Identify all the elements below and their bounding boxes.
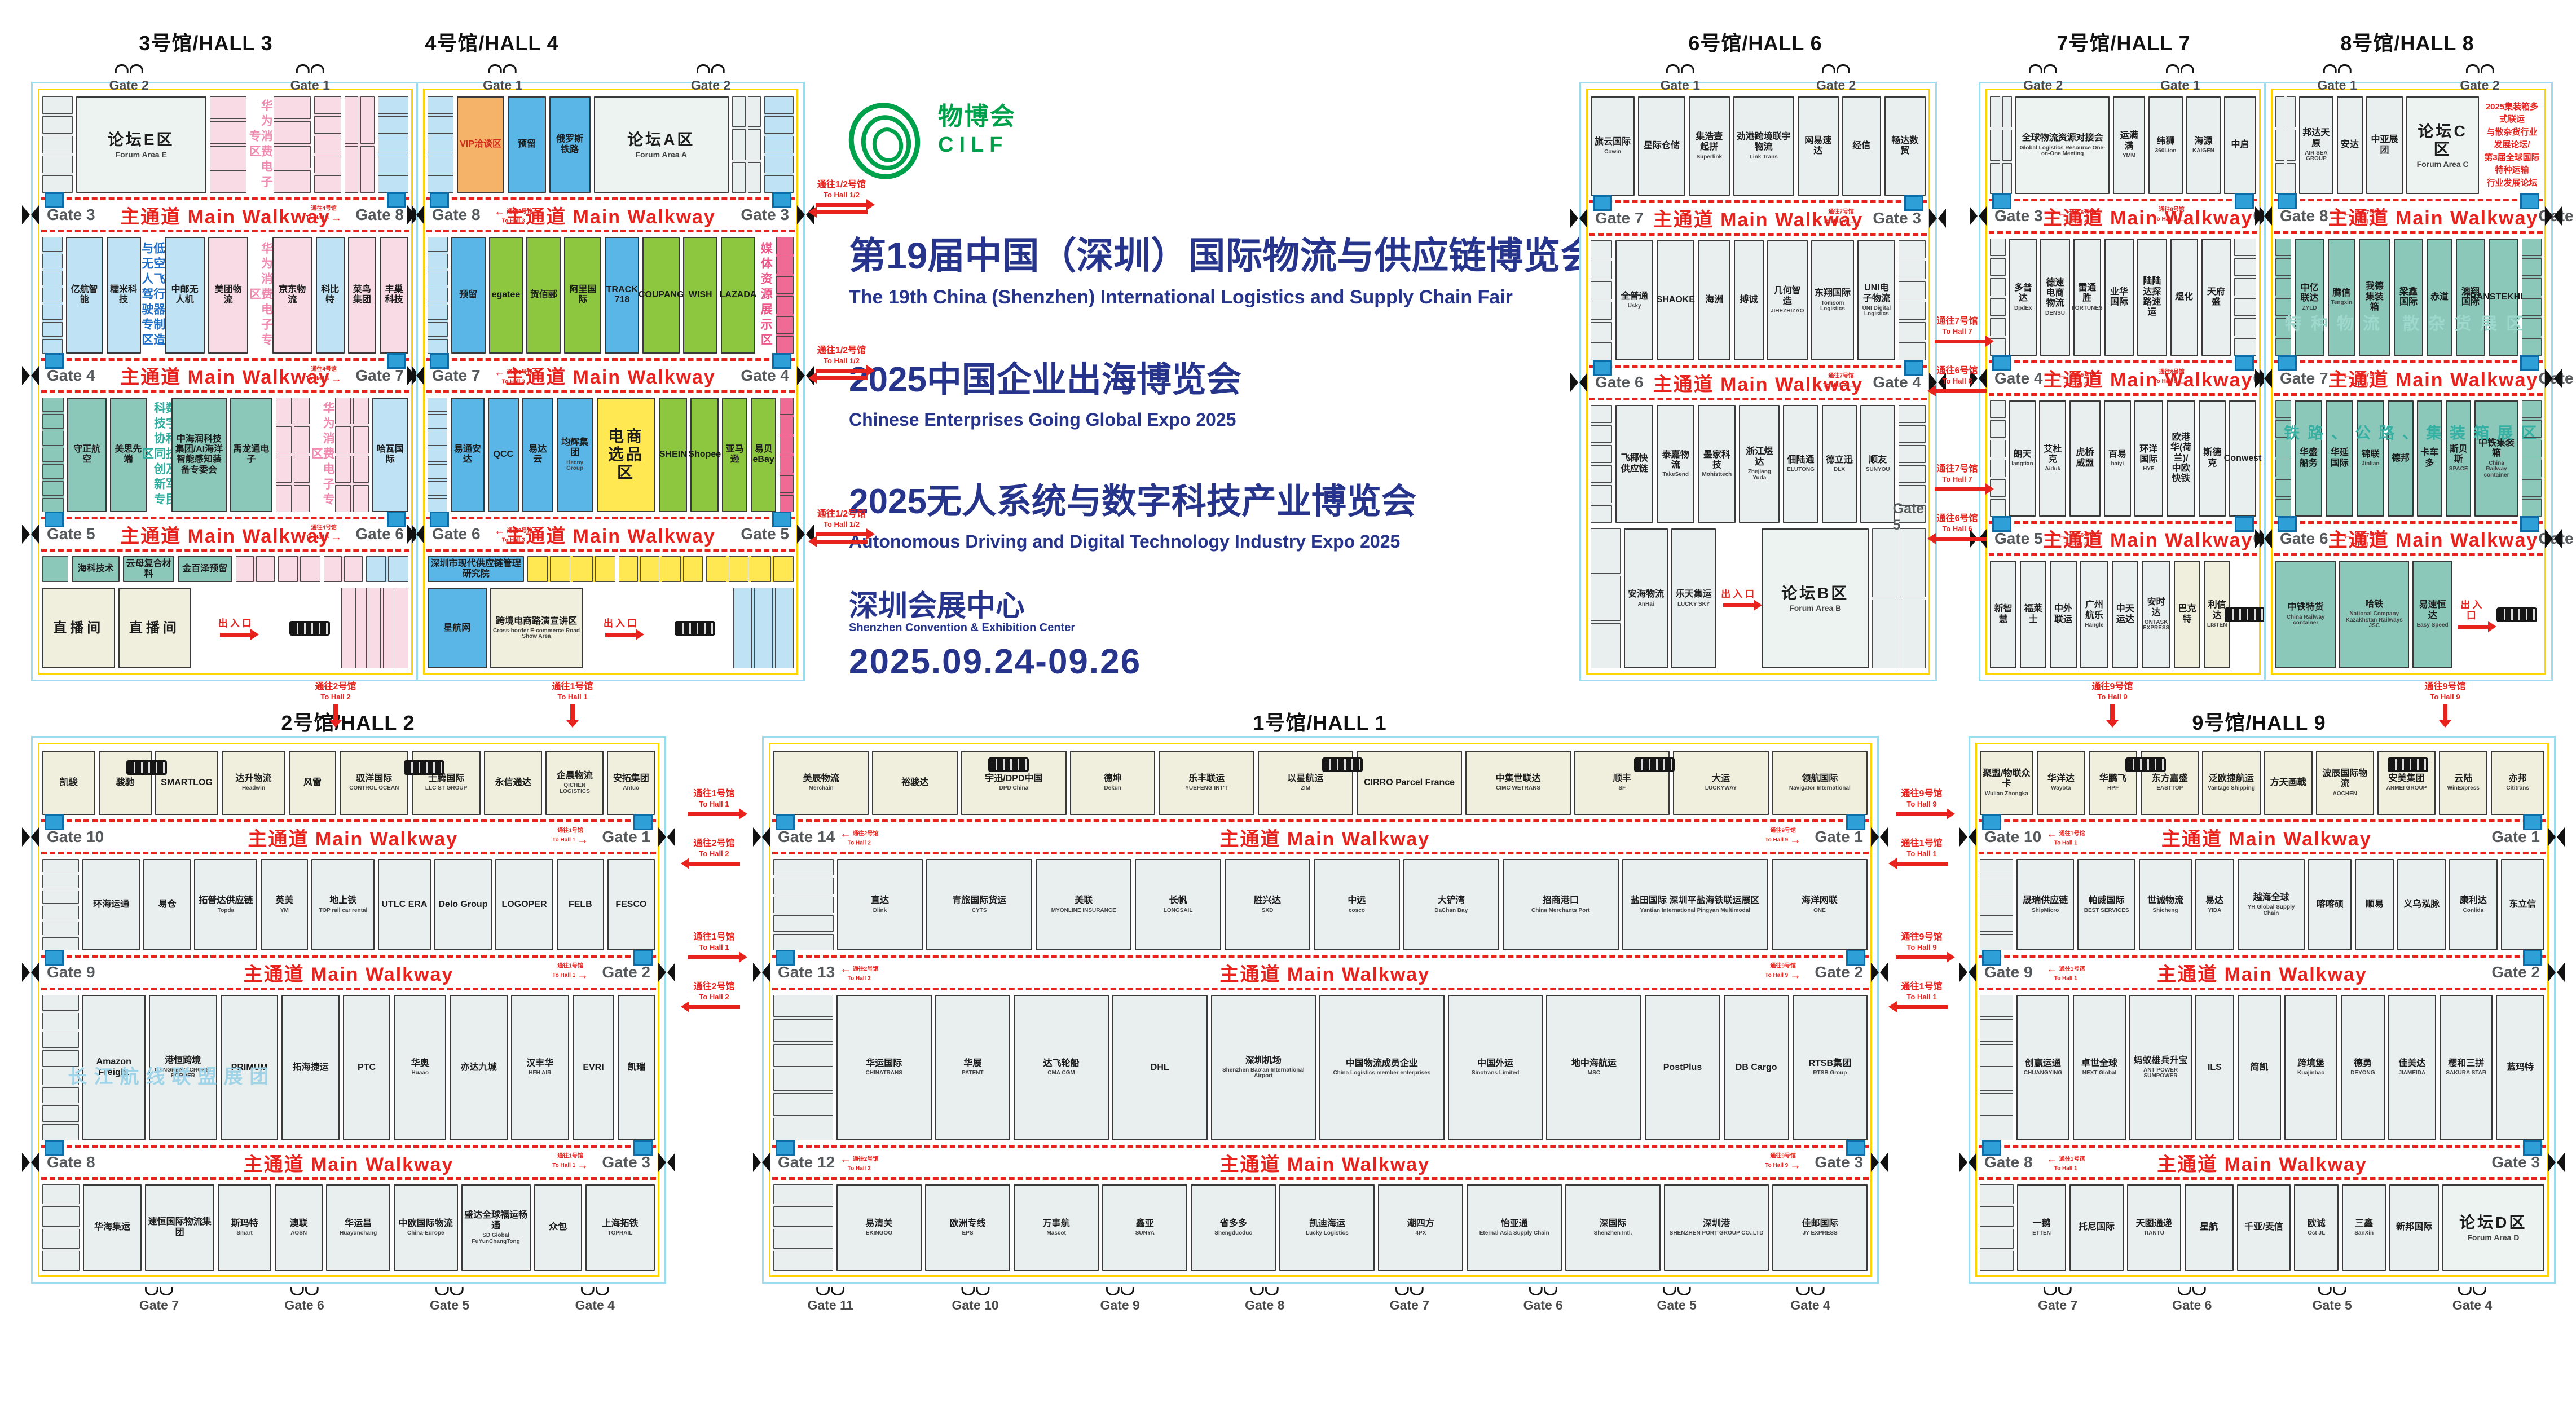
gate-arch-icon xyxy=(109,64,149,76)
booth-grid xyxy=(706,556,794,582)
main-walkway: Gate 13主通道 Main WalkwayGate 2← 通往2号馆To H… xyxy=(772,955,1869,990)
booth-grid-inner xyxy=(776,237,794,354)
booth-labeled: 潮四方4PX xyxy=(1378,1184,1463,1271)
booth-grid xyxy=(2234,239,2256,356)
booth-labeled: 凯迪海运Lucky Logistics xyxy=(1279,1184,1375,1271)
bottom-gate: Gate 6 xyxy=(1523,1284,1563,1313)
booth xyxy=(776,276,794,294)
booth-labeled: 经信 xyxy=(1842,96,1881,196)
escalator-icon xyxy=(2225,607,2265,622)
booth xyxy=(42,288,63,302)
booth xyxy=(764,116,794,134)
gate-label: Gate 4 xyxy=(575,1298,615,1313)
booth-labeled: 中铁集装箱China Railway container xyxy=(2474,400,2518,517)
arrow-icon xyxy=(816,369,868,373)
booth xyxy=(773,995,833,1017)
direction-note: 通往6号馆To Hall 6 xyxy=(1935,365,1980,394)
booth xyxy=(1591,322,1612,340)
booth xyxy=(274,146,311,169)
gate-label: Gate 2 xyxy=(2023,78,2063,93)
booth-labeled: SHEIN xyxy=(659,398,687,513)
walkway-gate-left: Gate 7 xyxy=(432,367,481,385)
top-gate: Gate 1 xyxy=(1661,64,1700,93)
booth-labeled: 泛欧捷航运Vantage Shipping xyxy=(2202,751,2260,815)
booth-zone: 直达Dlink青旅国际货运CYTS美联MYONLINE INSURANCE长帆L… xyxy=(772,856,1869,953)
booth-grid xyxy=(2522,400,2542,517)
booth xyxy=(776,296,794,314)
direction-note: 通往9号馆To Hall 9 xyxy=(2081,681,2143,723)
booth-grid xyxy=(773,859,834,950)
booth-labeled: 领航国际Navigator International xyxy=(1772,751,1868,815)
walkway-gate-right: Gate 1 xyxy=(602,828,650,846)
booth xyxy=(42,481,64,496)
gate-marker-icon xyxy=(407,525,424,544)
gate-label: Gate 6 xyxy=(284,1298,324,1313)
walkway-direction-note: 通往9号馆To Hall 9 → xyxy=(1765,828,1801,847)
booth-zone: 朗天langtian艾杜克Aiduk虎桥威盟百易baiyi环洋国际HYE欧港华(… xyxy=(1989,398,2257,519)
booth xyxy=(775,588,794,668)
gate-label: Gate 1 xyxy=(2317,78,2357,93)
escalator xyxy=(1634,757,1675,772)
gate-marker-icon xyxy=(658,1153,675,1172)
booth xyxy=(42,1032,79,1048)
gate-label: Gate 4 xyxy=(1790,1298,1830,1313)
hall-map-hall1: Gate 11Gate 10Gate 9Gate 8Gate 7Gate 6Ga… xyxy=(762,736,1879,1284)
booth-labeled: 凯骏 xyxy=(42,751,95,815)
booth-labeled: 中亚展团 xyxy=(2366,96,2403,194)
booth xyxy=(1899,405,1926,423)
bottom-gate: Gate 7 xyxy=(139,1284,179,1313)
booth-labeled: 风雷 xyxy=(289,751,337,815)
booth-labeled: 丰巢科技 xyxy=(380,237,408,354)
door-marker xyxy=(1593,360,1612,376)
booth-labeled: 泰嘉物流TakeSend xyxy=(1657,405,1694,523)
arrow-icon xyxy=(2110,704,2115,721)
booth-labeled: 聚盟/物联众卡Wulian Zhongka xyxy=(1980,751,2033,815)
logo-zh: 物博会 xyxy=(938,96,1016,132)
booth-grid xyxy=(776,237,794,354)
event-title-block: 物博会 CILF 第19届中国（深圳）国际物流与供应链博览会 The 19th … xyxy=(849,96,1571,189)
gate-arch-icon xyxy=(1390,1284,1429,1295)
gate-label: Gate 9 xyxy=(1100,1298,1140,1313)
booth xyxy=(764,136,794,153)
booth xyxy=(42,1105,79,1122)
gate-marker-icon xyxy=(2545,529,2562,548)
booth xyxy=(732,162,746,193)
booth-labeled: 跨境电商路演宣讲区Cross-border E-commerce Road Sh… xyxy=(490,588,583,668)
booth-labeled: 深圳市现代供应链管理研究院 xyxy=(428,556,524,582)
booth-labeled: 哈瓦国际 xyxy=(372,398,409,513)
gate-marker-icon xyxy=(1570,373,1587,392)
main-walkway: Gate 8主通道 Main WalkwayGate 3← 通往3号馆To Ha… xyxy=(426,197,795,232)
booth xyxy=(353,456,369,483)
venue-en: Shenzhen Convention & Exhibition Center xyxy=(849,622,1075,634)
zone-vertical-label: 低空飞行器制造与无人驾驶专区 xyxy=(144,237,162,354)
booth xyxy=(2275,258,2291,276)
booth-labeled: 易速恒达Easy Speed xyxy=(2412,561,2452,668)
booth xyxy=(42,937,79,951)
booth-zone: 易通安达QCC易达云均辉集团Hecny Group电商选品区SHEINShope… xyxy=(426,395,795,515)
booth xyxy=(1990,163,2000,194)
booth-labeled: 三鑫SanXin xyxy=(2342,1184,2386,1271)
zone-vertical-label: 华为消费电子专区 xyxy=(250,96,270,193)
escalator-icon xyxy=(2388,757,2428,772)
hall-map-hall2: Gate 7Gate 6Gate 5Gate 4凯骏骏驰SMARTLOG达升物流… xyxy=(31,736,666,1284)
arrow-icon xyxy=(816,210,868,214)
walkway-gate-left: Gate 5 xyxy=(47,525,95,543)
expo2-title-en: Chinese Enterprises Going Global Expo 20… xyxy=(849,409,1236,430)
walkway-direction-note: ← 通往6号馆To Hall 6 xyxy=(2057,369,2095,387)
walkway-gate-right: Gate 8 xyxy=(355,206,404,224)
expo3-title-en: Autonomous Driving and Digital Technolog… xyxy=(849,531,1400,552)
walkway-direction-note: 通往9号馆To Hall 9 → xyxy=(1765,963,1801,982)
booth xyxy=(1591,576,1621,621)
booth-grid-inner xyxy=(236,556,275,582)
gate-arch-icon xyxy=(1523,1284,1563,1295)
hall-rows: VIP洽谈区预留俄罗斯铁路论坛A区Forum Area AGate 8主通道 M… xyxy=(426,94,795,671)
bottom-gate: Gate 6 xyxy=(284,1284,324,1313)
booth-labeled: 糯米科技 xyxy=(107,237,141,354)
booth-zone: 聚盟/物联众卡Wulian Zhongka华洋达Wayota华鹏飞HPF东方嘉盛… xyxy=(1979,748,2546,818)
booth xyxy=(748,96,761,127)
top-gate: Gate 2 xyxy=(691,64,730,93)
booth-labeled: 顺友SUNYOU xyxy=(1860,405,1895,523)
escalator-icon xyxy=(1634,757,1675,772)
walkway-gate-right: Gate 1 xyxy=(1815,828,1863,846)
booth xyxy=(773,556,794,582)
door-marker xyxy=(1846,814,1865,830)
booth-labeled: 康利达Conlida xyxy=(2449,859,2498,950)
walkway-gate-right: Gate 2 xyxy=(602,963,650,981)
gate-marker-icon xyxy=(1570,209,1587,228)
booth xyxy=(732,129,746,160)
booth-grid xyxy=(42,398,64,513)
booth-grid xyxy=(2275,96,2296,194)
booth-labeled: 科比特 xyxy=(316,237,345,354)
booth xyxy=(428,398,447,412)
gate-marker-icon xyxy=(22,963,39,982)
booth-labeled: 中欧国际物流China-Europe xyxy=(394,1184,458,1271)
booth-zone: 全普通UskySHAOKE海洲搏诚几何智造JIHEZHIZAO东翔国际Tomso… xyxy=(1589,237,1927,363)
booth-labeled: COUPANG xyxy=(642,237,680,354)
door-marker xyxy=(387,192,406,208)
zone-overlay-text: 特种物流 散杂货展区 xyxy=(2285,310,2532,334)
escalator-icon xyxy=(2496,607,2537,622)
booth xyxy=(42,237,63,252)
booth-labeled: 美团物流 xyxy=(208,237,248,354)
booth-zone: 美辰物流Merchain裕骏达宇迅/DPD中国DPD China德坤Dekun乐… xyxy=(772,748,1869,818)
booth-zone: VIP洽谈区预留俄罗斯铁路论坛A区Forum Area A xyxy=(426,94,795,196)
gate-arch-icon xyxy=(2460,64,2499,76)
booth-grid-inner xyxy=(1872,528,1926,668)
booth-labeled: 华海集运 xyxy=(83,1184,142,1271)
booth xyxy=(428,498,447,513)
booth-labeled: 华运昌Huayunchang xyxy=(326,1184,390,1271)
walkway-gate-left: Gate 4 xyxy=(47,367,95,385)
booth-labeled: 金百泽预留 xyxy=(178,556,232,582)
walkway-gate-left: Gate 7 xyxy=(2280,369,2328,387)
walkway-label: 主通道 Main Walkway xyxy=(95,1149,602,1176)
booth-grid-inner xyxy=(1980,995,2013,1140)
booth-labeled: 喀喀硕 xyxy=(2308,859,2352,950)
hall-map-hall7: Gate 2Gate 1全球物流资源对接会Global Logistics Re… xyxy=(1979,82,2267,681)
gate-marker-icon xyxy=(22,1153,39,1172)
booth-zone: 多普达DpdEx德速电商物流DENSU雷通胜FORTUNES业华国际陆陆达探路速… xyxy=(1989,236,2257,359)
booth-labeled: 汉丰华HFH AIR xyxy=(511,995,569,1140)
booth-grid xyxy=(732,96,761,193)
booth-grid-inner xyxy=(2234,239,2256,356)
entrance-note: 出入口 xyxy=(586,588,657,668)
booth-grid xyxy=(1899,240,1926,360)
booth-labeled: 云母复合材料 xyxy=(123,556,174,582)
booth-labeled: 业华国际 xyxy=(2104,239,2134,356)
booth xyxy=(1591,445,1612,463)
booth-grid-inner xyxy=(733,588,794,668)
door-marker xyxy=(430,192,449,208)
booth-grid-inner xyxy=(2275,96,2296,194)
door-marker xyxy=(1992,193,2011,209)
walkway-direction-note: ← 通往2号馆To Hall 2 xyxy=(840,963,878,982)
walkway-direction-note: 通往8号馆To Hall 8 → xyxy=(2154,207,2190,226)
door-marker xyxy=(776,950,795,966)
booth-zone: 安海物流AnHai乐天集运LUCKY SKY出入口论坛B区Forum Area … xyxy=(1589,526,1927,671)
booth xyxy=(210,96,247,119)
booth xyxy=(388,556,408,582)
walkway-gate-left: Gate 10 xyxy=(47,828,104,846)
zone-vertical-label: 华为消费电子专区 xyxy=(252,237,269,354)
gate-label: Gate 7 xyxy=(139,1298,179,1313)
booth-grid-inner xyxy=(773,1184,833,1271)
booth xyxy=(1990,298,2006,316)
walkway-gate-right: Gate 7 xyxy=(355,367,404,385)
booth xyxy=(42,271,63,285)
walkway-gate-right: Gate 6 xyxy=(355,525,404,543)
walkway-direction-note: 通往7号馆To Hall 7 → xyxy=(1823,373,1859,392)
direction-note: 通往1/2号馆To Hall 1/2 xyxy=(808,179,875,215)
booth xyxy=(2275,400,2291,418)
walkway-gate-right: Gate 4 xyxy=(1873,373,1921,391)
booth xyxy=(378,116,408,134)
booth xyxy=(42,116,73,134)
door-marker xyxy=(387,512,406,527)
entrance-note: 出入口 xyxy=(2456,561,2489,668)
booth-grid xyxy=(2275,400,2291,517)
booth-labeled: 禹龙通电子 xyxy=(230,398,272,513)
booth xyxy=(1980,1251,2014,1271)
booth-labeled: 运满满YMM xyxy=(2113,96,2145,194)
direction-note: 通往9号馆To Hall 9 xyxy=(1879,932,1964,960)
walkway-direction-note: ← 通往7号馆To Hall 7 xyxy=(2342,207,2380,226)
booth xyxy=(428,96,453,114)
booth-labeled: 佳美达JIAMEIDA xyxy=(2388,995,2437,1140)
booth-labeled: CIRRO Parcel France xyxy=(1357,751,1462,815)
booth-labeled: 方天画戟 xyxy=(2264,751,2313,815)
booth-grid xyxy=(1990,96,2012,194)
main-walkway: Gate 9主通道 Main WalkwayGate 2通往1号馆To Hall… xyxy=(41,955,656,990)
escalator-icon xyxy=(675,621,715,636)
zone-overlay-text: 铁路、公路、集装箱展区 xyxy=(2284,421,2544,443)
booth-grid-inner xyxy=(276,398,310,513)
booth xyxy=(378,175,408,193)
booth xyxy=(210,170,247,193)
gate-label: Gate 7 xyxy=(2038,1298,2077,1313)
booth-labeled: FESCO xyxy=(607,859,655,950)
main-walkway: Gate 6主通道 Main WalkwayGate 5← 通往7号馆To Ha… xyxy=(2274,521,2543,556)
gate-marker-icon xyxy=(2255,529,2272,548)
booth-labeled: 中铁特货China Railway container xyxy=(2275,561,2336,668)
booth xyxy=(2234,239,2256,256)
booth-labeled: 电商选品区 xyxy=(597,398,656,513)
booth-labeled: 论坛A区Forum Area A xyxy=(594,96,729,193)
booth-labeled: 直达Dlink xyxy=(837,859,923,950)
walkway-gate-left: Gate 10 xyxy=(1984,828,2041,846)
booth xyxy=(345,146,359,193)
door-marker xyxy=(772,512,791,527)
booth-grid-inner xyxy=(42,96,73,193)
booth xyxy=(345,96,359,144)
gate-marker-icon xyxy=(2255,369,2272,388)
booth xyxy=(360,146,375,193)
booth-zone: 凯骏骏驰SMARTLOG达升物流Headwin风雷驭洋国际CONTROL OCE… xyxy=(41,748,656,818)
booth xyxy=(780,398,794,415)
main-walkway: Gate 5主通道 Main WalkwayGate 6← 通往6号馆To Ha… xyxy=(1989,521,2257,556)
booth-grid xyxy=(210,96,247,193)
booth xyxy=(1980,1184,2014,1204)
bottom-gate: Gate 11 xyxy=(808,1284,854,1313)
cilf-logo-icon xyxy=(849,96,933,180)
booth xyxy=(1591,623,1621,668)
booth-labeled: 煜化 xyxy=(2170,239,2198,356)
door-marker xyxy=(1593,195,1612,211)
booth-zone: 易清关EKINGOO欧洲专线EPS万事航Mascot鑫亚SUNYA省多多Shen… xyxy=(772,1182,1869,1273)
booth-labeled: 海科技术 xyxy=(72,556,120,582)
booth xyxy=(42,891,79,904)
door-marker xyxy=(2278,355,2297,371)
booth xyxy=(276,398,292,425)
entrance-note: 出入口 xyxy=(194,588,278,668)
booth xyxy=(1980,1229,2014,1249)
booth xyxy=(335,485,351,512)
booth-labeled: 大铲湾DaChan Bay xyxy=(1403,859,1499,950)
arrow-icon xyxy=(2458,625,2489,629)
booth-grid xyxy=(42,1184,80,1271)
walkway-gate-left: Gate 5 xyxy=(1994,530,2043,548)
booth xyxy=(42,175,73,193)
gate-label: Gate 7 xyxy=(1390,1298,1429,1313)
arrow-icon xyxy=(570,704,575,721)
booth-labeled: LAZADA xyxy=(721,237,755,354)
booth-labeled: 环洋国际HYE xyxy=(2134,400,2163,517)
escalator xyxy=(404,760,444,775)
booth xyxy=(42,414,64,429)
walkway-gate-right: Gate 1 xyxy=(2491,828,2540,846)
booth-grid xyxy=(1980,1184,2014,1271)
gate-marker-icon xyxy=(407,205,424,224)
escalator xyxy=(2125,757,2166,772)
booth xyxy=(428,322,448,337)
booth-zone: 直播间直播间出入口 xyxy=(41,585,409,671)
arrow-icon xyxy=(688,812,740,816)
gate-marker-icon xyxy=(1871,963,1888,982)
door-marker xyxy=(1904,195,1923,211)
walkway-gate-left: Gate 8 xyxy=(47,1153,95,1171)
booth-labeled: 东翔国际Tomsom Logistics xyxy=(1811,240,1855,360)
walkway-label: 主通道 Main Walkway xyxy=(835,823,1815,851)
booth-grid xyxy=(42,859,79,950)
door-marker xyxy=(2523,1140,2542,1156)
booth-labeled: 深圳机场Shenzhen Bao'an International Airpor… xyxy=(1211,995,1316,1140)
booth xyxy=(42,1251,80,1271)
booth-labeled: 搏诚 xyxy=(1734,240,1764,360)
gate-label: Gate 6 xyxy=(1523,1298,1563,1313)
booth-labeled: 凯瑞 xyxy=(618,995,655,1140)
booth xyxy=(42,859,79,872)
booth-labeled: 裕骏达 xyxy=(872,751,958,815)
booth-labeled: 深圳港SHENZHEN PORT GROUP CO.,LTD xyxy=(1664,1184,1769,1271)
booth xyxy=(2522,499,2542,517)
door-marker xyxy=(387,353,406,369)
arrow-icon xyxy=(1896,812,1948,816)
walkway-direction-note: ← 通往6号馆To Hall 6 xyxy=(2057,207,2095,226)
booth xyxy=(2287,96,2296,127)
booth xyxy=(1899,342,1926,360)
booth xyxy=(1980,878,2013,894)
top-gate: Gate 1 xyxy=(2317,64,2357,93)
booth-labeled: 天府盛 xyxy=(2201,239,2231,356)
booth xyxy=(595,556,615,582)
arrow-icon xyxy=(1723,603,1755,607)
top-gate: Gate 2 xyxy=(109,64,149,93)
booth-labeled: 盛达全球福运畅通SD Global FuYunChangTong xyxy=(461,1184,531,1271)
booth xyxy=(294,426,310,453)
booth-labeled: 畅达数贸 xyxy=(1884,96,1926,196)
booth-grid-inner xyxy=(773,995,833,1140)
booth xyxy=(1980,1093,2013,1116)
booth-grid-inner xyxy=(780,398,794,513)
main-title-zh: 第19届中国（深圳）国际物流与供应链博览会 xyxy=(849,226,1597,280)
gate-arch-icon xyxy=(430,1284,469,1295)
booth-grid xyxy=(773,1184,833,1271)
escalator-icon xyxy=(126,760,167,775)
top-gate: Gate 2 xyxy=(2460,64,2499,93)
booth-grid-inner xyxy=(42,398,64,513)
booth xyxy=(1980,934,2013,950)
booth-labeled: WISH xyxy=(683,237,717,354)
booth-labeled: 上海拓铁TOPRAIL xyxy=(585,1184,655,1271)
booth xyxy=(42,156,73,173)
booth xyxy=(42,922,79,935)
hall-title-hall7: 7号馆/HALL 7 xyxy=(2057,27,2190,56)
booth-grid xyxy=(1591,240,1612,360)
gate-marker-icon xyxy=(2545,206,2562,226)
booth-labeled: RTSB集团RTSB Group xyxy=(1793,995,1868,1140)
booth xyxy=(428,116,453,134)
booth-labeled: 天图通递TIANTU xyxy=(2127,1184,2181,1271)
booth-labeled: 鑫亚SUNYA xyxy=(1102,1184,1187,1271)
booth-grid xyxy=(733,588,794,668)
escalator xyxy=(281,588,338,668)
booth-labeled: 中集世联达CIMC WETRANS xyxy=(1465,751,1571,815)
door-marker xyxy=(2523,814,2542,830)
booth-grid xyxy=(428,398,447,513)
booth-zone: 飞椰快供应链泰嘉物流TakeSend墨家科技Mohisttech浙江煜达Zhej… xyxy=(1589,402,1927,526)
booth-labeled: 德坤Dekun xyxy=(1070,751,1156,815)
walkway-direction-note: ← 通往6号馆To Hall 6 xyxy=(2057,529,2095,548)
gate-arch-icon xyxy=(575,1284,615,1295)
booth xyxy=(324,556,342,582)
gate-marker-icon xyxy=(2545,369,2562,388)
booth-zone: 华海集运速恒国际物流集团斯玛特Smart澳联AOSN华运昌Huayunchang… xyxy=(41,1182,656,1273)
